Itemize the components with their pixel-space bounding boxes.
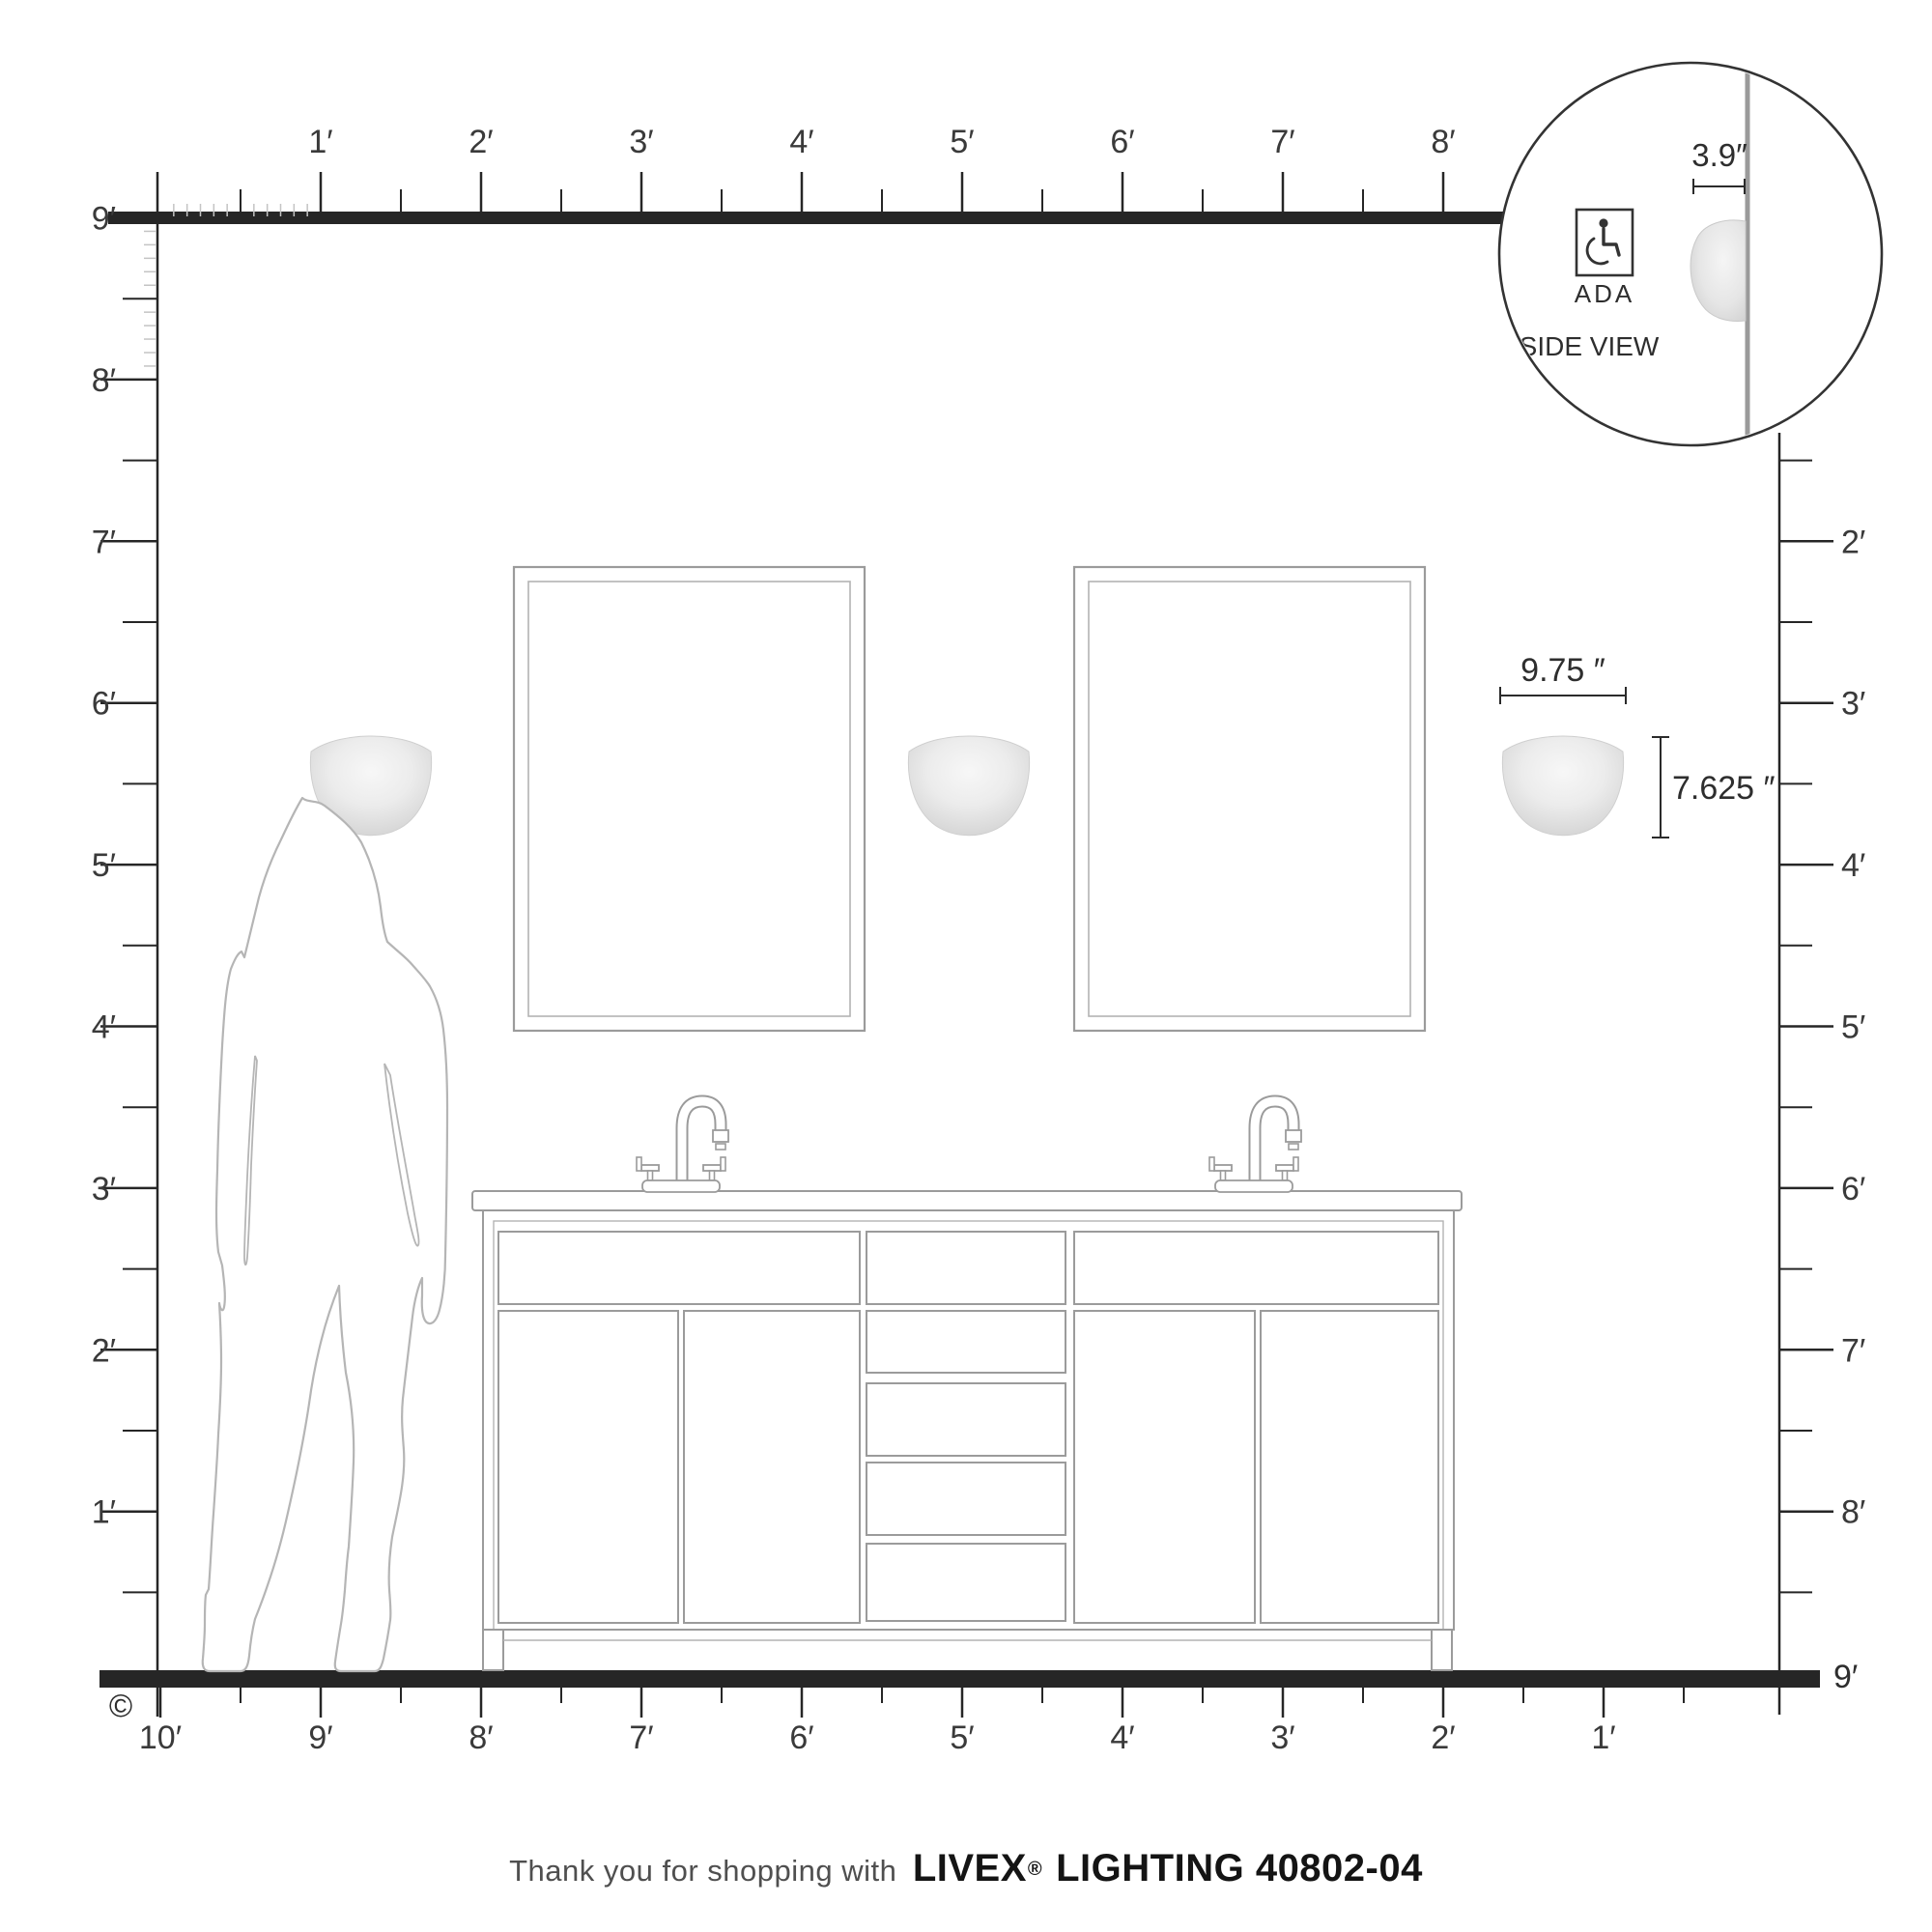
mirror-outer-frame [514,567,865,1031]
height-dim-label: 7.625 ″ [1672,770,1776,807]
right-ruler-label: 2′ [1841,524,1865,560]
ada-label: ADA [1575,279,1634,308]
faucet-nozzle [713,1130,728,1142]
footer-registered-mark: ® [1028,1859,1042,1880]
floor-right-height-label: 9′ [1833,1659,1858,1695]
footer: Thank you for shopping with LIVEX® LIGHT… [0,1847,1932,1890]
mirror-outer-frame [1074,567,1425,1031]
right-ruler: 2′3′4′5′6′7′8′ [1779,433,1865,1715]
left-ruler: 9′8′7′6′5′4′3′2′1′ [92,172,157,1717]
vanity-drawer [867,1383,1065,1456]
faucet-handle-cap [1209,1157,1214,1171]
vanity-drawer [867,1311,1065,1373]
faucet-handle-bar [703,1165,721,1171]
person-outline [203,798,447,1671]
vanity-door [1074,1311,1255,1623]
faucet-handle-stem [710,1171,715,1180]
faucet-nozzle [1286,1130,1301,1142]
bottom-ruler: 10′9′8′7′6′5′4′3′2′1′ [139,1688,1684,1756]
faucet-handle-cap [721,1157,725,1171]
copyright-symbol: © [109,1688,132,1723]
left-ruler-label: 8′ [92,362,116,399]
faucet-handle-stem [648,1171,653,1180]
wall-sconce [1502,736,1623,836]
bottom-ruler-label: 8′ [469,1719,493,1756]
left-ruler-label: 7′ [92,524,116,560]
faucets [637,1101,1301,1192]
right-ruler-label: 3′ [1841,686,1865,723]
vanity-drawer [498,1232,860,1304]
ada-wheelchair-head-icon [1599,218,1607,227]
faucet-handle-bar [1214,1165,1232,1171]
inset-circle [1499,63,1882,445]
top-ruler: 1′2′3′4′5′6′7′8′ [174,124,1456,218]
bottom-ruler-label: 4′ [1110,1719,1134,1756]
bottom-ruler-label: 7′ [629,1719,653,1756]
left-ruler-label: 2′ [92,1332,116,1369]
vanity-left-leg [483,1630,503,1670]
vanity-door [684,1311,860,1623]
faucet-handle-bar [641,1165,659,1171]
depth-dim-label: 3.9″ [1691,137,1747,173]
top-ruler-label: 5′ [950,124,974,160]
right-ruler-label: 4′ [1841,847,1865,884]
vanity-right-leg [1432,1630,1452,1670]
faucet-base [1215,1180,1293,1192]
bottom-ruler-label: 3′ [1270,1719,1294,1756]
right-ruler-label: 5′ [1841,1009,1865,1046]
top-ruler-label: 3′ [629,124,653,160]
faucet-handle-stem [1283,1171,1288,1180]
wall-sconce [908,736,1029,836]
left-ruler-label: 6′ [92,686,116,723]
footer-brand-name: LIVEX [913,1847,1027,1889]
vanity-cabinet [472,1191,1462,1670]
ada-compliance-icon [1577,210,1633,275]
bottom-ruler-label: 9′ [308,1719,332,1756]
person-silhouette [203,798,447,1671]
faucet-handle-stem [1221,1171,1226,1180]
vanity-countertop [472,1191,1462,1210]
top-ruler-label: 1′ [308,124,332,160]
ceiling-line [108,212,1505,224]
top-ruler-label: 8′ [1431,124,1455,160]
bottom-ruler-label: 5′ [950,1719,974,1756]
left-ruler-label: 9′ [92,201,116,238]
faucet-nozzle-tip [716,1144,725,1150]
left-ruler-label: 5′ [92,847,116,884]
top-ruler-label: 7′ [1270,124,1294,160]
top-ruler-label: 6′ [1110,124,1134,160]
floor-line [99,1670,1820,1688]
vanity-drawer [867,1232,1065,1304]
vanity-door [1261,1311,1438,1623]
width-dim-label: 9.75 ″ [1520,652,1605,689]
faucet-handle-cap [637,1157,641,1171]
vanity-door [498,1311,678,1623]
faucet-base [642,1180,720,1192]
bottom-ruler-label: 6′ [789,1719,813,1756]
faucet-nozzle-tip [1289,1144,1298,1150]
right-ruler-label: 7′ [1841,1332,1865,1369]
vanity-drawer [867,1544,1065,1621]
faucet-handle-cap [1293,1157,1298,1171]
right-ruler-label: 6′ [1841,1171,1865,1207]
spec-diagram-canvas: 1′2′3′4′5′6′7′8′ 9′8′7′6′5′4′3′2′1′ 2′3′… [0,0,1932,1932]
vanity-drawer [1074,1232,1438,1304]
left-ruler-label: 1′ [92,1494,116,1531]
left-ruler-label: 3′ [92,1171,116,1207]
side-view-inset: 3.9″ ADA SIDE VIEW [1499,58,1882,449]
footer-product-number: LIGHTING 40802-04 [1056,1847,1423,1889]
faucet-handle-bar [1276,1165,1293,1171]
right-ruler-label: 8′ [1841,1494,1865,1531]
side-view-label: SIDE VIEW [1520,331,1660,361]
vanity-drawer [867,1463,1065,1535]
top-ruler-label: 2′ [469,124,493,160]
diagram-svg: 1′2′3′4′5′6′7′8′ 9′8′7′6′5′4′3′2′1′ 2′3′… [0,0,1932,1932]
footer-thanks-text: Thank you for shopping with [509,1854,896,1888]
top-ruler-label: 4′ [789,124,813,160]
bottom-ruler-label: 10′ [139,1719,182,1756]
wall-sconces [310,736,1623,836]
bottom-ruler-label: 2′ [1431,1719,1455,1756]
left-ruler-label: 4′ [92,1009,116,1046]
bottom-ruler-label: 1′ [1591,1719,1615,1756]
